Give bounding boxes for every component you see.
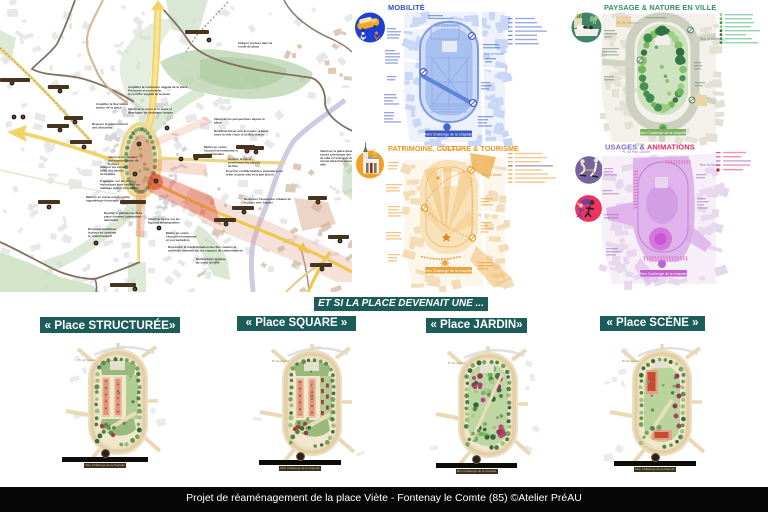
svg-text:identitaire: identitaire	[104, 218, 119, 222]
svg-text:USAGES & ANIMATIONS: USAGES & ANIMATIONS	[605, 143, 695, 152]
svg-text:de la place: de la place	[100, 172, 116, 176]
svg-text:Rue la Santé: Rue la Santé	[482, 173, 502, 177]
svg-text:place: place	[214, 120, 222, 124]
svg-text:signalétique historique: signalétique historique	[86, 198, 119, 202]
svg-text:Pl. de l'ancien: Pl. de l'ancien	[448, 361, 466, 365]
svg-text:maillage piéton structurant: maillage piéton structurant	[100, 186, 139, 190]
svg-text:Pl. du Parc Jardin: Pl. du Parc Jardin	[622, 150, 650, 154]
svg-text:Mon Challenge de la chapelle: Mon Challenge de la chapelle	[639, 131, 686, 135]
svg-text:Rue la Santé: Rue la Santé	[484, 52, 504, 56]
svg-text:développe de nouveaux usages: développe de nouveaux usages	[128, 110, 174, 114]
svg-text:entre la ville s'due et la Mar: entre la ville s'due et la Marc Baron	[214, 132, 264, 136]
svg-text:et son belvédère: et son belvédère	[166, 238, 190, 242]
svg-text:des directions: des directions	[92, 125, 113, 129]
svg-text:Mon Challenge de la chapelle: Mon Challenge de la chapelle	[640, 272, 687, 276]
svg-text:de Rue: de Rue	[228, 164, 238, 168]
svg-text:Mon Challenge de la chapelle: Mon Challenge de la chapelle	[425, 269, 472, 273]
svg-text:Mon Challenge de la chapelle: Mon Challenge de la chapelle	[425, 132, 472, 136]
svg-text:Pl. de l'ancien: Pl. de l'ancien	[622, 359, 640, 363]
svg-text:autour de la place: autour de la place	[96, 105, 122, 109]
svg-text:Rue la Santé: Rue la Santé	[700, 37, 720, 41]
svg-text:PAYSAGE & NATURE EN VILLE: PAYSAGE & NATURE EN VILLE	[604, 3, 716, 12]
svg-text:Pl. de l'ancien: Pl. de l'ancien	[78, 358, 96, 362]
svg-text:Rue République: Rue République	[434, 23, 459, 27]
svg-text:ville: ville	[320, 163, 326, 167]
svg-text:façades remarquables: façades remarquables	[148, 220, 180, 224]
svg-text:au coeur de ville: au coeur de ville	[196, 260, 220, 264]
svg-text:la place vers l'église: la place vers l'église	[244, 200, 273, 204]
svg-text:MOBILITÉ: MOBILITÉ	[388, 3, 425, 12]
svg-text:Pl. de l'ancien: Pl. de l'ancien	[272, 359, 290, 363]
svg-text:mobilités donnant sur les espa: mobilités donnant sur les espaces de sta…	[168, 248, 243, 252]
svg-text:le corridor végétal de la plac: le corridor végétal de la place	[128, 92, 171, 96]
svg-text:PATRIMOINE, CULTURE & TOURISME: PATRIMOINE, CULTURE & TOURISME	[388, 144, 519, 153]
svg-text:relier la jante ville et la ju: relier la jante ville et la juin Baron	[226, 172, 274, 176]
svg-text:son belvédère: son belvédère	[204, 152, 225, 156]
svg-text:le stationnement: le stationnement	[88, 234, 112, 238]
svg-text:Pl. de l'ancien: Pl. de l'ancien	[617, 21, 639, 25]
svg-text:ronde de place: ronde de place	[238, 44, 260, 48]
